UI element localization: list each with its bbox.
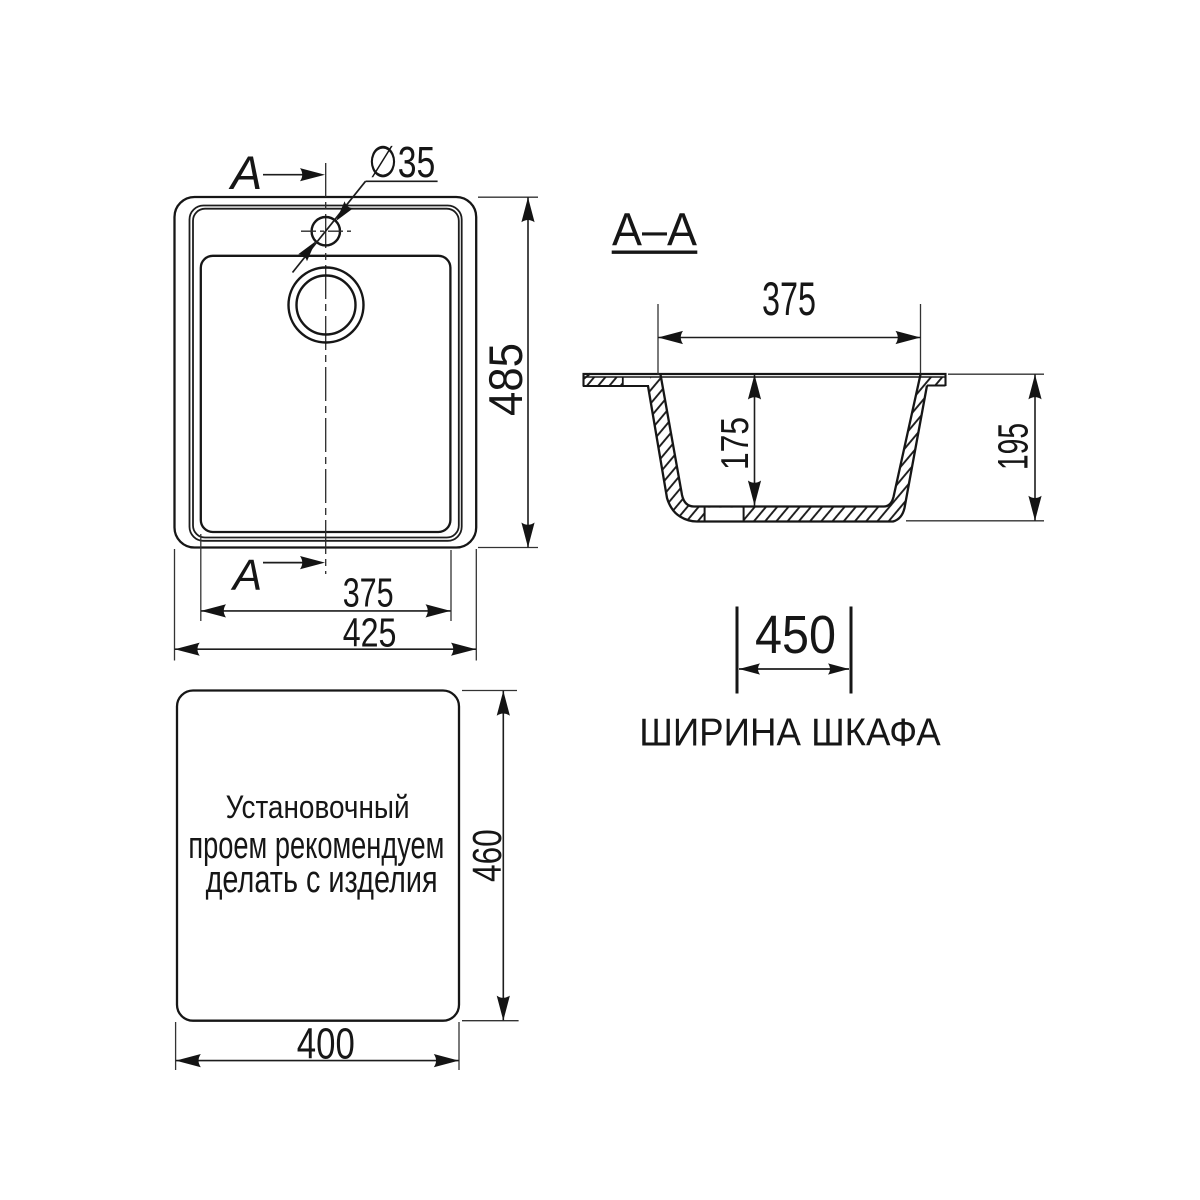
svg-text:A–A: A–A: [612, 204, 697, 256]
svg-text:делать с изделия: делать с изделия: [206, 859, 438, 901]
svg-text:425: 425: [343, 609, 397, 655]
svg-text:ШИРИНА ШКАФА: ШИРИНА ШКАФА: [639, 712, 941, 755]
svg-text:450: 450: [755, 606, 836, 665]
svg-text:400: 400: [297, 1019, 355, 1068]
svg-text:∅35: ∅35: [368, 138, 435, 187]
svg-text:375: 375: [762, 272, 816, 325]
svg-text:A: A: [228, 146, 262, 199]
svg-text:175: 175: [714, 417, 757, 470]
svg-text:A: A: [230, 551, 262, 600]
svg-text:485: 485: [479, 343, 532, 416]
svg-text:460: 460: [464, 829, 510, 882]
svg-text:195: 195: [989, 423, 1037, 470]
svg-text:Установочный: Установочный: [226, 789, 410, 825]
